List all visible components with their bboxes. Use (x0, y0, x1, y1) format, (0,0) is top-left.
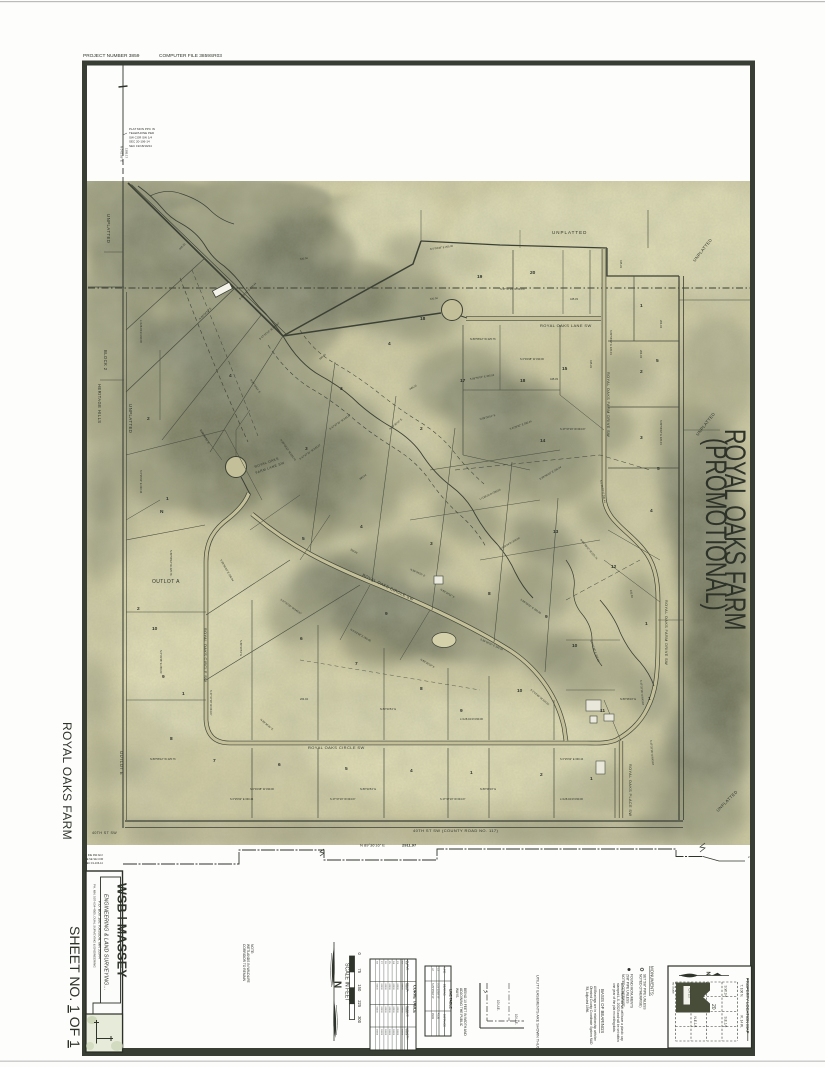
svg-text:1: 1 (590, 776, 593, 782)
svg-text:9: 9 (545, 614, 548, 620)
svg-text:4: 4 (410, 768, 413, 774)
svg-text:00000: 00000 (404, 1007, 406, 1014)
svg-text:N 89°36'16" E: N 89°36'16" E (620, 697, 636, 701)
svg-text:N: N (332, 981, 343, 988)
svg-text:00000: 00000 (376, 1007, 378, 1014)
svg-text:N 0°01'05" E: N 0°01'05" E (120, 146, 124, 162)
svg-text:BEARING: BEARING (443, 984, 447, 996)
svg-text:SCALE IN FEET: SCALE IN FEET (344, 963, 350, 1002)
svg-text:00000: 00000 (400, 1029, 402, 1036)
svg-text:L=128.04 R=330.00: L=128.04 R=330.00 (560, 797, 583, 801)
svg-text:S.W.1/4: S.W.1/4 (724, 986, 728, 998)
svg-text:10: 10 (152, 626, 158, 632)
svg-text:no Scale: no Scale (672, 982, 676, 994)
svg-text:N 89°34'51" E: N 89°34'51" E (360, 787, 376, 791)
svg-text:LINE: LINE (443, 968, 447, 974)
svg-text:445.33: 445.33 (550, 377, 558, 381)
svg-text:OUTLOT E: OUTLOT E (119, 751, 124, 775)
svg-text:N: N (705, 972, 711, 976)
svg-text:00000: 00000 (380, 1029, 382, 1036)
svg-text:N 89°58'12" W 225.76: N 89°58'12" W 225.76 (150, 757, 176, 761)
svg-text:264.04: 264.04 (639, 350, 643, 358)
svg-text:1: 1 (470, 770, 473, 776)
svg-text:SEC 19/18/19/24: SEC 19/18/19/24 (129, 144, 152, 148)
svg-text:18: 18 (520, 378, 526, 384)
svg-text:2911.97: 2911.97 (402, 843, 417, 848)
svg-text:S 89°56'02" E 335.04: S 89°56'02" E 335.04 (659, 420, 663, 445)
svg-text:S 47°37'16" W 643.67: S 47°37'16" W 643.67 (500, 287, 526, 291)
svg-text:S 25°25'16" W: S 25°25'16" W (431, 983, 434, 999)
svg-text:5: 5 (345, 766, 348, 772)
svg-text:S 0°03'48" W 330.00: S 0°03'48" W 330.00 (520, 357, 544, 361)
svg-text:00000: 00000 (396, 1007, 398, 1014)
svg-text:S 47°37'16" W 643.67: S 47°37'16" W 643.67 (209, 690, 213, 716)
svg-text:ROYAL OAKS CIRCLE SW: ROYAL OAKS CIRCLE SW (203, 628, 207, 682)
svg-text:SE SE SE COR: SE SE SE COR (85, 857, 103, 861)
svg-text:PROJECT NUMBER 3859: PROJECT NUMBER 3859 (83, 53, 140, 59)
svg-text:40TH ST SW (COUNTY ROAD NO. 11: 40TH ST SW (COUNTY ROAD NO. 117) (413, 828, 499, 833)
svg-text:9: 9 (460, 708, 463, 714)
svg-text:UNPLATTED: UNPLATTED (128, 404, 133, 433)
svg-text:40TH ST SW: 40TH ST SW (92, 831, 117, 835)
svg-text:S.E.1/4: S.E.1/4 (724, 1017, 728, 1028)
svg-text:13: 13 (553, 529, 559, 535)
svg-text:DISTANCE: DISTANCE (443, 1014, 447, 1027)
svg-text:S 47°37'16" W 643.67: S 47°37'16" W 643.67 (440, 797, 466, 801)
svg-text:N 0°03'48" E 265.00: N 0°03'48" E 265.00 (159, 650, 163, 674)
svg-text:1: 1 (182, 691, 185, 697)
svg-text:00000: 00000 (392, 1007, 394, 1014)
svg-text:150: 150 (357, 984, 362, 992)
svg-text:UNPLATTED: UNPLATTED (106, 214, 111, 243)
svg-text:00000: 00000 (396, 984, 398, 991)
svg-text:29.81: 29.81 (431, 1013, 434, 1020)
svg-text:N 89°34'51" E: N 89°34'51" E (380, 707, 396, 711)
svg-text:N 89°34'51" E: N 89°34'51" E (239, 640, 243, 656)
svg-text:2: 2 (137, 606, 140, 612)
svg-text:20: 20 (710, 1004, 716, 1010)
svg-text:11: 11 (600, 708, 605, 714)
svg-text:18: 18 (420, 316, 426, 322)
svg-text:9: 9 (385, 611, 388, 617)
svg-text:S 0°25'32" E 330.44: S 0°25'32" E 330.44 (230, 797, 254, 801)
svg-text:5: 5 (656, 358, 659, 364)
svg-text:00000: 00000 (404, 984, 406, 991)
svg-text:WSB ǀ MASSEY: WSB ǀ MASSEY (115, 883, 129, 978)
svg-text:1: 1 (166, 496, 169, 502)
svg-text:2: 2 (420, 426, 423, 432)
svg-text:N 89°36'16" E: N 89°36'16" E (480, 787, 496, 791)
svg-text:S 47°37'16" W 643.67: S 47°37'16" W 643.67 (560, 427, 586, 431)
svg-text:SHEET NO. 1 OF 1: SHEET NO. 1 OF 1 (67, 926, 83, 1048)
svg-text:10: 10 (572, 643, 578, 649)
svg-text:6: 6 (300, 636, 303, 642)
svg-text:15: 15 (562, 366, 568, 372)
svg-text:445.33: 445.33 (619, 260, 623, 268)
svg-text:N: N (160, 509, 164, 515)
svg-text:8: 8 (170, 736, 173, 742)
svg-text:T. 106 N.: T. 106 N. (740, 985, 744, 998)
svg-text:00000: 00000 (388, 1007, 390, 1014)
svg-text:10 U.E.: 10 U.E. (496, 1000, 500, 1011)
svg-text:1: 1 (648, 696, 651, 702)
svg-text:00000: 00000 (392, 1029, 394, 1036)
svg-text:2: 2 (640, 369, 643, 375)
svg-text:5: 5 (302, 536, 305, 542)
svg-text:10: 10 (517, 688, 523, 694)
svg-text:7: 7 (213, 758, 216, 764)
svg-text:00000: 00000 (388, 984, 390, 991)
svg-text:N 89°36'16" E: N 89°36'16" E (360, 843, 385, 848)
svg-text:300: 300 (357, 1016, 362, 1024)
svg-text:S 0°25'32" E 330.44: S 0°25'32" E 330.44 (560, 757, 584, 761)
svg-text:00000: 00000 (400, 1007, 402, 1014)
svg-text:3: 3 (430, 541, 433, 547)
svg-text:SEC 19-106-14: SEC 19-106-14 (85, 861, 103, 865)
svg-text:00000: 00000 (380, 1007, 382, 1014)
svg-text:SET 5/8" PIPE UNLESSNOTED OTHE: SET 5/8" PIPE UNLESSNOTED OTHERWISE) (638, 974, 646, 1010)
svg-text:OUTLOT A: OUTLOT A (152, 579, 180, 585)
svg-text:4: 4 (360, 524, 363, 530)
svg-text:45.36: 45.36 (436, 1013, 439, 1020)
svg-text:5: 5 (657, 466, 660, 472)
svg-text:BLOCK 2: BLOCK 2 (103, 350, 108, 371)
svg-text:00000: 00000 (388, 1029, 390, 1036)
svg-text:UTILITY EASEMENTS ARE SHOWN TH: UTILITY EASEMENTS ARE SHOWN THUS: (536, 975, 540, 1050)
svg-text:445.33: 445.33 (570, 297, 578, 301)
svg-text:ENGINEERING & LAND SURVEYING…: ENGINEERING & LAND SURVEYING… (103, 894, 109, 991)
svg-text:N 89°58'12" W 225.76: N 89°58'12" W 225.76 (169, 550, 173, 576)
svg-text:ROYAL OAKS PLACE SW: ROYAL OAKS PLACE SW (628, 764, 632, 816)
svg-text:N.E.1/4: N.E.1/4 (693, 1017, 697, 1028)
svg-text:19: 19 (477, 274, 483, 280)
svg-text:7: 7 (355, 661, 358, 667)
svg-text:4: 4 (229, 373, 232, 379)
svg-text:ROYAL OAKS FARM DRIVE SW: ROYAL OAKS FARM DRIVE SW (606, 372, 610, 437)
svg-text:UNPLATTED: UNPLATTED (552, 230, 587, 235)
svg-text:S 25°25'16" W: S 25°25'16" W (436, 983, 439, 999)
svg-text:14: 14 (540, 438, 546, 444)
svg-text:P.O. BOX 100, KASSON, MN 55944: P.O. BOX 100, KASSON, MN 55944 (98, 901, 102, 959)
svg-text:225: 225 (357, 1000, 362, 1008)
svg-text:MONUMENTS:: MONUMENTS: (650, 966, 655, 996)
svg-text:1395.17: 1395.17 (125, 148, 129, 159)
svg-text:BASIS OF BEARINGS: BASIS OF BEARINGS (600, 989, 605, 1033)
svg-text:ROYAL OAKS LANE SW: ROYAL OAKS LANE SW (540, 323, 592, 328)
svg-text:20: 20 (530, 270, 536, 276)
svg-text:PH. MN. 507-634-4505, DUAL SUR: PH. MN. 507-634-4505, DUAL SURVEYING & E… (93, 884, 97, 968)
svg-text:N 89°58'12" W 225.76: N 89°58'12" W 225.76 (470, 337, 496, 341)
svg-text:00000: 00000 (384, 1029, 386, 1036)
svg-text:HERITAGE HILLS: HERITAGE HILLS (97, 384, 102, 424)
svg-text:00000: 00000 (376, 984, 378, 991)
svg-text:75: 75 (357, 968, 362, 973)
svg-text:445.33: 445.33 (589, 360, 593, 368)
svg-text:R. 14 W.: R. 14 W. (740, 1016, 744, 1028)
svg-text:ROYAL OAKS CIRCLE SW: ROYAL OAKS CIRCLE SW (308, 745, 365, 750)
svg-text:264.04: 264.04 (300, 697, 308, 701)
svg-text:4: 4 (388, 341, 391, 347)
svg-text:00000: 00000 (384, 1007, 386, 1014)
svg-text:L=128.04 R=330.00: L=128.04 R=330.00 (139, 320, 143, 343)
svg-text:4: 4 (650, 508, 653, 514)
svg-text:S 0°25'32" E 330.44: S 0°25'32" E 330.44 (139, 470, 143, 494)
svg-text:(PROMOTIONAL): (PROMOTIONAL) (699, 438, 734, 611)
svg-text:S 89°56'02" E 335.04: S 89°56'02" E 335.04 (609, 330, 613, 355)
svg-text:L=128.04 R=330.00: L=128.04 R=330.00 (460, 717, 483, 721)
svg-text:2: 2 (147, 416, 150, 422)
svg-text:00000: 00000 (384, 984, 386, 991)
svg-text:8: 8 (420, 686, 423, 692)
svg-text:CURVE TABLE: CURVE TABLE (413, 985, 418, 1013)
svg-text:S 0°03'48" W 330.00: S 0°03'48" W 330.00 (250, 787, 274, 791)
svg-text:00000: 00000 (376, 1029, 378, 1036)
svg-text:264.04: 264.04 (659, 320, 663, 328)
svg-text:00000: 00000 (380, 984, 382, 991)
svg-text:10 U.E.: 10 U.E. (514, 1014, 518, 1025)
svg-text:6: 6 (278, 762, 281, 768)
svg-text:1: 1 (640, 303, 643, 309)
svg-text:ROYAL OAKS FARM: ROYAL OAKS FARM (60, 722, 74, 840)
svg-text:00000: 00000 (396, 1029, 398, 1036)
svg-text:1: 1 (645, 621, 648, 627)
svg-text:LINE TABLE: LINE TABLE (449, 989, 453, 1009)
svg-text:COMPUTER FILE 3859SR03: COMPUTER FILE 3859SR03 (159, 53, 222, 59)
svg-text:2: 2 (540, 772, 543, 778)
svg-text:8: 8 (488, 591, 491, 597)
svg-text:ROYAL OAKS FARM DRIVE SW: ROYAL OAKS FARM DRIVE SW (664, 600, 668, 665)
svg-text:CR 117: CR 117 (688, 989, 692, 999)
svg-text:S 47°37'16" W 643.67: S 47°37'16" W 643.67 (330, 797, 356, 801)
svg-text:P. INE RW ADJ: P. INE RW ADJ (85, 853, 103, 857)
svg-text:17: 17 (460, 378, 466, 384)
svg-text:00000: 00000 (400, 984, 402, 991)
svg-text:3: 3 (340, 386, 343, 392)
svg-text:00000: 00000 (392, 984, 394, 991)
svg-text:12: 12 (611, 564, 617, 570)
svg-text:00000: 00000 (404, 1029, 406, 1036)
svg-text:9: 9 (162, 674, 165, 680)
svg-text:3: 3 (640, 435, 643, 441)
